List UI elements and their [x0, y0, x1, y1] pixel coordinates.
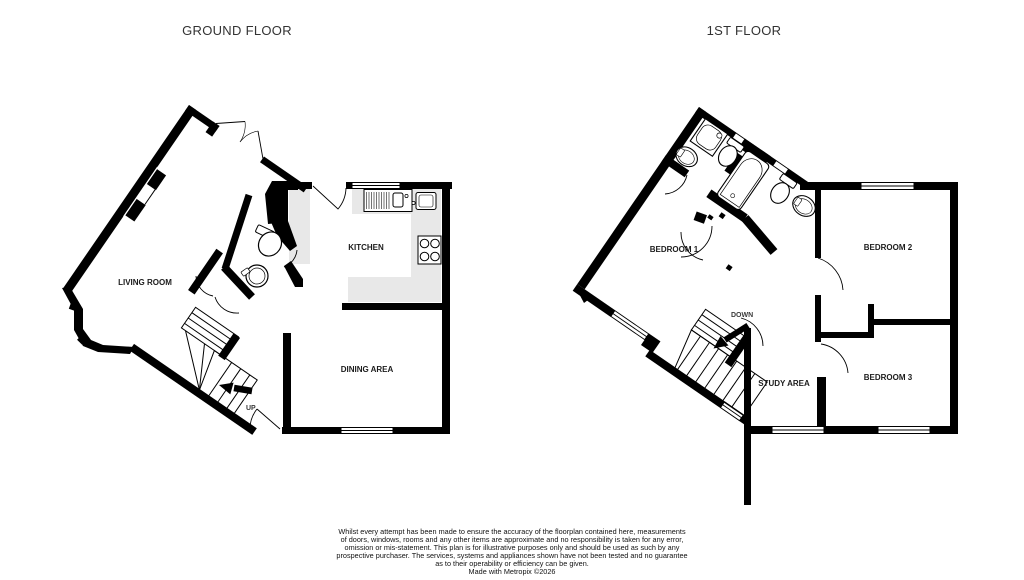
svg-text:KITCHEN: KITCHEN	[348, 243, 384, 252]
svg-text:STUDY AREA: STUDY AREA	[758, 379, 810, 388]
svg-text:GROUND FLOOR: GROUND FLOOR	[182, 23, 292, 38]
svg-text:BEDROOM 2: BEDROOM 2	[864, 243, 913, 252]
svg-text:Made with Metropix ©2026: Made with Metropix ©2026	[469, 567, 556, 576]
svg-text:UP: UP	[246, 405, 256, 412]
svg-text:BEDROOM 3: BEDROOM 3	[864, 373, 913, 382]
svg-text:1ST FLOOR: 1ST FLOOR	[707, 23, 782, 38]
svg-text:DINING AREA: DINING AREA	[341, 365, 394, 374]
svg-text:DOWN: DOWN	[731, 312, 753, 319]
svg-text:BEDROOM 1: BEDROOM 1	[650, 245, 699, 254]
svg-text:LIVING ROOM: LIVING ROOM	[118, 278, 172, 287]
